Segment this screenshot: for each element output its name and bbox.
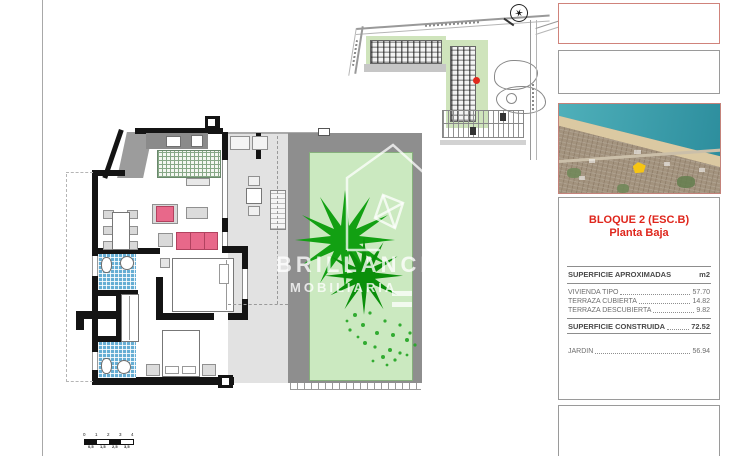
siteplan-parking-divider [442,123,524,124]
wall-bed1-bottom-a [156,313,214,320]
photo-green-patch [617,184,629,193]
glass-window-living [222,232,228,246]
watermark-bar [392,302,412,307]
wall-bottom [92,377,234,385]
wall-bed1-bottom-b [228,313,248,320]
sofa [176,232,218,250]
photo-building [589,159,595,163]
garden-row: JARDIN56.94 [568,348,710,355]
watermark-bar [392,291,412,296]
bedroom2-nightstand [202,364,216,376]
wall-entry-bar [76,311,122,319]
terrace-column [318,128,330,136]
scale-sublabel: 2,5 [112,444,118,449]
bedroom1-pillow [219,264,229,284]
bathroom2-sink [117,360,131,374]
photo-building [664,162,670,166]
scale-label: 2 [107,432,110,437]
property-boundary [66,174,67,382]
siteplan-parking [442,110,524,138]
kitchen-sink [166,136,181,147]
terrace-bench-2 [252,136,268,150]
scale-segment [121,440,133,444]
siteplan-location-marker [473,77,480,84]
watermark-logo [335,140,430,265]
photo-building [579,176,585,180]
block-subtitle: Planta Baja [559,227,719,239]
bedroom2-nightstand [146,364,160,376]
wall-living-a [222,132,228,160]
bedroom2-pillow [182,366,196,374]
sofa-cushion-line [190,233,191,249]
surface-header-unit: m2 [699,270,710,279]
leader-dots [620,293,690,295]
divider [567,333,711,334]
armchair [156,206,174,222]
bedroom2-pillow [165,366,179,374]
wall-bed1-left [156,277,163,320]
scale-sublabel: 3,5 [124,444,130,449]
scale-label: 3 [119,432,122,437]
info-box-top [558,3,720,44]
leader-dots [667,328,689,330]
surface-total-row: SUPERFICIE CONSTRUIDA72.52 [568,322,710,331]
photo-building [699,168,705,172]
sheet-margin-line [42,0,43,456]
scale-segment [97,440,109,444]
bedroom1-nightstand [160,258,170,268]
watermark-text-1: BRILLANCE [276,252,439,278]
info-box-2 [558,50,720,94]
wall-topleft [92,170,125,176]
surface-row-value: 14.82 [692,298,710,305]
bathroom1-sink [120,256,134,270]
coffee-table [186,207,208,219]
leader-dots [639,302,690,304]
siteplan-road-right-2 [536,20,537,160]
glass-door-bed1 [242,269,248,299]
siteplan-street-label-right [532,82,534,110]
plan-sheet: ✶ [0,0,756,456]
garden-row-value: 56.94 [692,348,710,355]
scale-label: 4 [131,432,134,437]
leader-dots [653,311,694,313]
scale-label: 1 [95,432,98,437]
dining-table [112,212,130,250]
glass-door-living [222,160,228,218]
scale-sublabel: 0,5 [88,444,94,449]
siteplan-road-band-a [364,64,446,72]
scale-segment [109,440,121,444]
wall-pillar-core [208,119,215,126]
surface-header-row: SUPERFICIE APROXIMADAS m2 [568,270,710,279]
siteplan-parked-car-2 [500,113,506,121]
side-table [158,233,173,247]
surface-row-label: TERRAZA CUBIERTA [568,298,637,305]
terrace-table [246,188,262,204]
siteplan-road-band-bottom [440,140,526,145]
siteplan-building-a [370,40,442,64]
wall-bed1-right-a [242,251,248,269]
surface-total-value: 72.52 [691,322,710,331]
siteplan-road-right [530,20,531,160]
property-boundary [66,172,93,173]
garden-railing [290,383,421,390]
scale-label: 0 [83,432,86,437]
watermark-text-2: MOBILIARIA [290,280,397,295]
sofa-cushion-line [204,233,205,249]
aerial-photo [558,103,721,194]
info-box-bottom [558,405,720,456]
hall-closet [121,294,139,342]
divider [567,266,711,267]
kitchen-floor-hatch [157,150,221,178]
leader-dots [595,352,690,354]
surface-row: VIVIENDA TIPO57.70 [568,289,710,296]
wall-entry-stub [76,319,84,330]
bathroom2-toilet [101,358,112,374]
scale-segment [85,440,97,444]
surface-row-label: TERRAZA DESCUBIERTA [568,307,651,314]
siteplan-park-circle [506,93,517,104]
photo-building [634,150,641,154]
scale-sublabel: 1,5 [100,444,106,449]
property-boundary [66,381,93,382]
divider [567,318,711,319]
surface-row-value: 9.82 [696,307,710,314]
bathroom1-toilet [101,257,112,273]
surface-row-value: 57.70 [692,289,710,296]
wall-bottom-post-core [222,378,229,385]
terrace-cover-limit [277,136,278,304]
terrace-bench [230,136,250,150]
surface-total-label: SUPERFICIE CONSTRUIDA [568,322,665,331]
photo-green-patch [677,176,695,188]
block-title: BLOQUE 2 (ESC.B) [559,214,719,226]
kitchen-hob [191,135,203,147]
surface-header-label: SUPERFICIE APROXIMADAS [568,270,671,279]
sun-lounger [270,190,286,230]
divider [567,283,711,284]
info-box-main: BLOQUE 2 (ESC.B) Planta Baja SUPERFICIE … [558,197,720,400]
garden-row-label: JARDIN [568,348,593,355]
terrace-cover-limit [228,304,288,305]
siteplan-parked-car-1 [470,127,476,135]
terrace-chair [248,206,260,216]
surface-row-label: VIVIENDA TIPO [568,289,618,296]
north-compass-icon: ✶ [508,2,531,25]
terrace-chair [248,176,260,186]
tv-unit [186,178,210,186]
hall-closet-line [129,296,130,340]
surface-row: TERRAZA CUBIERTA14.82 [568,298,710,305]
surface-row: TERRAZA DESCUBIERTA9.82 [568,307,710,314]
wall-living-b [222,218,228,232]
